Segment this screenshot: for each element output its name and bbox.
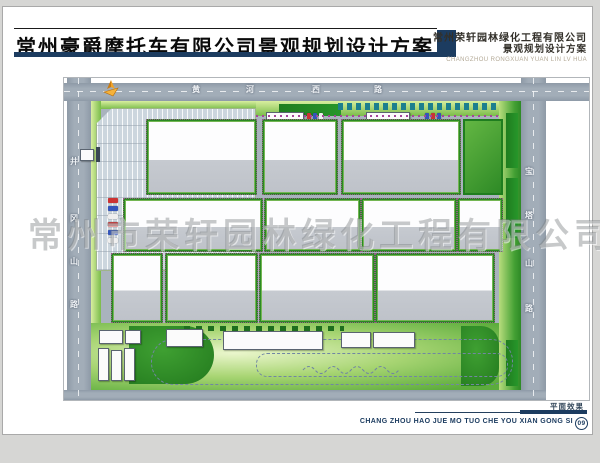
road-east-label-char: 宝 bbox=[524, 167, 534, 177]
road-west-label-char: 路 bbox=[69, 300, 79, 310]
road-north-label-char: 河 bbox=[245, 85, 255, 95]
car bbox=[108, 222, 118, 227]
road-west bbox=[67, 78, 91, 400]
road-east-lane-line bbox=[533, 78, 534, 400]
company-name: 常州荣轩园林绿化工程有限公司 bbox=[433, 33, 587, 45]
workshop-building bbox=[361, 198, 457, 252]
footer-rule-thick bbox=[520, 410, 587, 414]
workshop-building bbox=[123, 198, 263, 252]
road-east-label-char: 路 bbox=[524, 304, 534, 314]
car bbox=[108, 198, 118, 203]
road-north-label-char: 路 bbox=[373, 85, 383, 95]
road-east-label-char: 山 bbox=[524, 259, 534, 269]
car bbox=[108, 230, 118, 235]
road-north-lane-line bbox=[64, 91, 589, 92]
parking-stalls-row bbox=[338, 103, 498, 110]
verge-north-west bbox=[91, 101, 256, 109]
road-east-label-char: 塔 bbox=[524, 211, 534, 221]
workshop-building bbox=[457, 198, 503, 252]
project-subtitle: 景观规划设计方案 bbox=[433, 45, 587, 56]
road-south bbox=[64, 390, 546, 400]
road-north bbox=[64, 83, 589, 101]
road-north-label-char: 西 bbox=[311, 85, 321, 95]
dormitory-slab bbox=[124, 348, 135, 381]
workshop-building bbox=[341, 119, 461, 195]
footer-pinyin-text: CHANG ZHOU HAO JUE MO TUO CHE YOU XIAN G… bbox=[360, 418, 573, 425]
company-pinyin: CHANGZHOU RONGXUAN YUAN LIN LV HUA bbox=[433, 57, 587, 64]
car bbox=[108, 214, 118, 219]
road-west-label-char: 井 bbox=[69, 157, 79, 167]
west-gate-shelter bbox=[80, 149, 94, 161]
page-number-badge: 09 bbox=[575, 417, 588, 430]
service-building bbox=[99, 330, 123, 344]
service-building bbox=[341, 332, 371, 348]
workshop-building bbox=[259, 253, 375, 323]
east-hedge-block bbox=[506, 113, 518, 168]
header-right-block: 常州荣轩园林绿化工程有限公司 景观规划设计方案 CHANGZHOU RONGXU… bbox=[433, 33, 587, 64]
title-accent-bar bbox=[14, 52, 456, 57]
road-west-label-char: 冈 bbox=[69, 214, 79, 224]
north-arrow-icon bbox=[101, 79, 121, 97]
workshop-building bbox=[262, 119, 338, 195]
road-west-label-char: 山 bbox=[69, 257, 79, 267]
workshop-building bbox=[165, 253, 258, 323]
service-building bbox=[125, 330, 141, 344]
workshop-building bbox=[146, 119, 257, 195]
road-west-lane-line bbox=[78, 78, 79, 400]
west-gate-wall bbox=[96, 147, 100, 162]
car bbox=[108, 206, 118, 211]
footer-company-pinyin: CHANG ZHOU HAO JUE MO TUO CHE YOU XIAN G… bbox=[360, 417, 588, 430]
site-plan-drawing: 黄 河 西 路 井 冈 山 路 宝 塔 山 路 bbox=[63, 77, 590, 401]
service-building bbox=[373, 332, 415, 348]
page-canvas: 常州豪爵摩托车有限公司景观规划设计方案 常州荣轩园林绿化工程有限公司 景观规划设… bbox=[0, 0, 600, 463]
long-service-building bbox=[223, 331, 323, 350]
dormitory-slab bbox=[111, 350, 122, 381]
workshop-building bbox=[111, 253, 163, 323]
service-building bbox=[166, 329, 203, 347]
track-chicane-squiggle bbox=[301, 361, 401, 375]
car bbox=[108, 238, 118, 243]
workshop-building bbox=[375, 253, 495, 323]
title-top-rule bbox=[14, 28, 437, 29]
road-north-label-char: 黄 bbox=[191, 85, 201, 95]
hedge-dot-line bbox=[256, 115, 499, 117]
footer-rule-thin bbox=[415, 412, 521, 413]
workshop-building bbox=[264, 198, 361, 252]
dormitory-slab bbox=[98, 348, 109, 381]
east-hedge-block bbox=[506, 178, 518, 238]
green-block bbox=[463, 119, 503, 195]
